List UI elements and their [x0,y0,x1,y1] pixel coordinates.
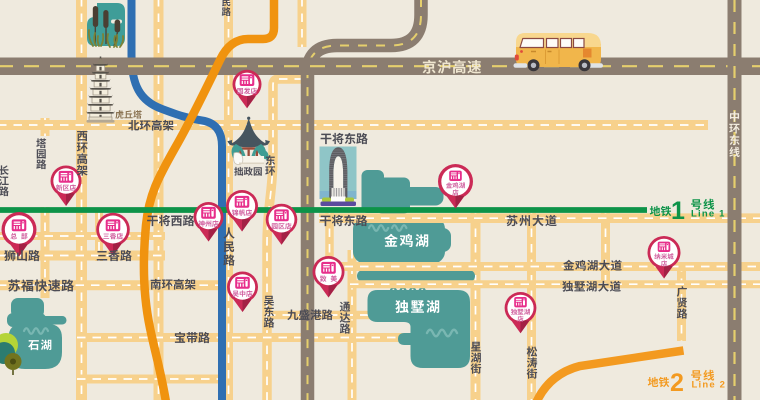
svg-text:2: 2 [670,369,684,397]
svg-text:Line 1: Line 1 [691,209,726,220]
svg-text:1: 1 [671,197,685,225]
svg-text:Line 2: Line 2 [692,380,727,391]
